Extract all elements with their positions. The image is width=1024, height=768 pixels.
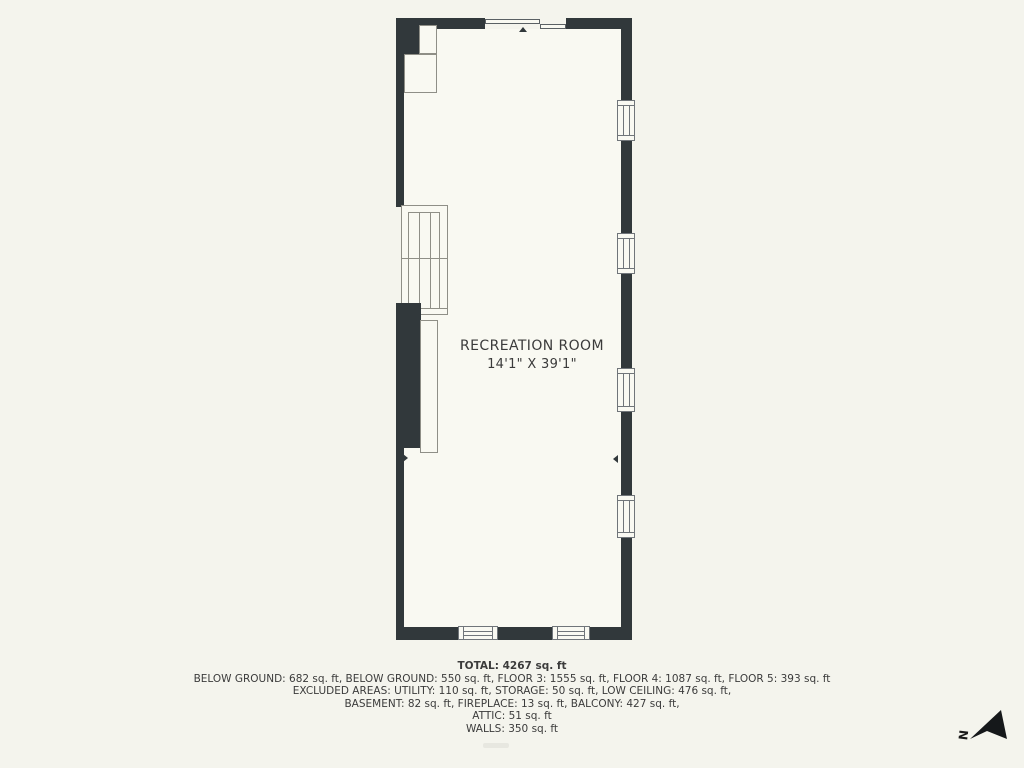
door-marker-right-icon [613,455,618,463]
compass-north-label: N [955,729,970,741]
wall-right-4 [621,412,632,495]
room-label: RECREATION ROOM 14'1" X 39'1" [417,338,647,372]
window-right-2 [617,233,635,274]
window-bottom-2 [552,626,590,640]
room-name: RECREATION ROOM [417,338,647,354]
window-bottom-1 [458,626,498,640]
total-area-line: TOTAL: 4267 sq. ft [0,660,1024,673]
wall-corner-mass-lower [396,54,404,93]
window-top-2 [540,24,566,29]
door-marker-bottom-icon [524,628,532,633]
summary-line: EXCLUDED AREAS: UTILITY: 110 sq. ft, STO… [0,685,1024,698]
window-right-1 [617,100,635,141]
wall-right-2 [621,141,632,233]
door-marker-top-icon [519,27,527,32]
staircase [401,205,448,315]
room-dimensions: 14'1" X 39'1" [417,357,647,372]
summary-line: BELOW GROUND: 682 sq. ft, BELOW GROUND: … [0,673,1024,686]
floor-plan: RECREATION ROOM 14'1" X 39'1" [0,0,1024,768]
faint-watermark [483,743,509,748]
wall-left-lower [396,448,404,627]
window-right-3 [617,368,635,412]
stair-tread-line [419,212,420,309]
closet-nook-small [419,25,437,54]
stair-landing-line [402,258,447,259]
window-right-4 [617,495,635,538]
north-arrow-icon [950,704,1012,750]
door-marker-left-icon [403,454,408,462]
wall-right-5 [621,538,632,640]
staircase-well [408,212,440,309]
closet-nook-large [404,54,437,93]
summary-line: ATTIC: 51 sq. ft [0,710,1024,723]
summary-line: BASEMENT: 82 sq. ft, FIREPLACE: 13 sq. f… [0,698,1024,711]
fireplace-mass [396,303,421,448]
wall-right-1 [621,18,632,100]
wall-bottom [396,627,632,640]
area-summary: TOTAL: 4267 sq. ft BELOW GROUND: 682 sq.… [0,660,1024,735]
compass: N [950,704,1012,750]
window-top-1 [485,19,540,24]
summary-line: WALLS: 350 sq. ft [0,723,1024,736]
wall-left-upper [396,93,404,207]
stair-tread-line [430,212,431,309]
